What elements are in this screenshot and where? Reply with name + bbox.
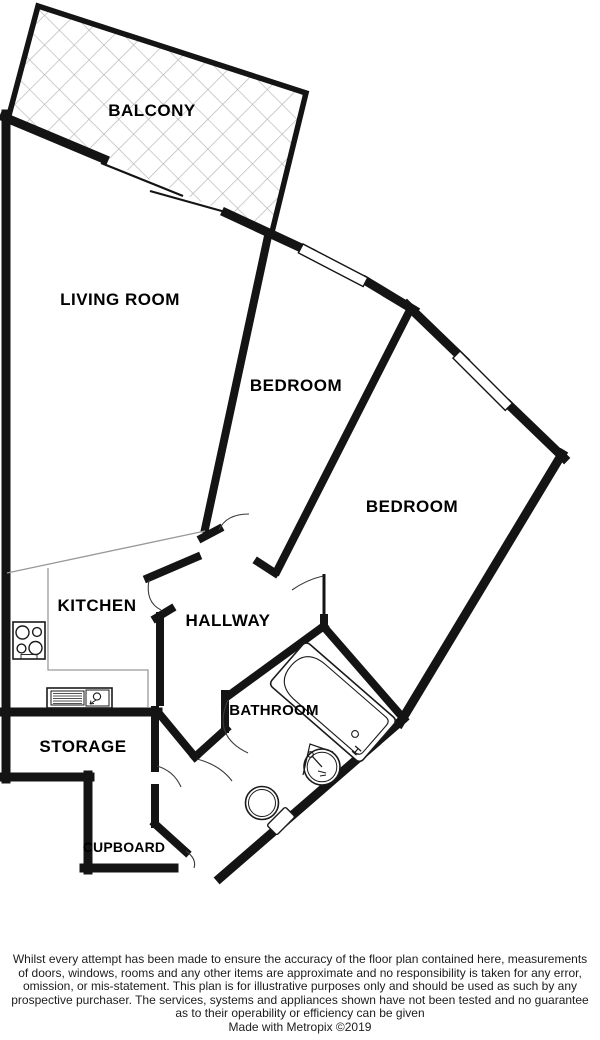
kitchen-label: KITCHEN	[57, 596, 136, 615]
living-room-label: LIVING ROOM	[60, 290, 180, 309]
wall-kitchen-hall-a	[148, 557, 197, 578]
balcony-label: BALCONY	[108, 101, 196, 120]
door-arc-kitchen	[148, 580, 161, 610]
bedroom2-label: BEDROOM	[366, 497, 458, 516]
jamb-bedroom2	[258, 562, 275, 573]
metropix-credit: Made with Metropix ©2019	[0, 1021, 600, 1035]
wall-hall-sw-a	[162, 717, 195, 757]
hallway-label: HALLWAY	[185, 611, 270, 630]
disclaimer-line: of doors, windows, rooms and any other i…	[0, 967, 600, 981]
sink-unit-icon	[47, 688, 112, 708]
window-icon	[298, 244, 367, 287]
disclaimer-line: Whilst every attempt has been made to en…	[0, 953, 600, 967]
disclaimer-line: prospective purchaser. The services, sys…	[0, 994, 600, 1008]
wall-ne-bedroom2-b	[509, 405, 564, 458]
disclaimer-line: omission, or mis-statement. This plan is…	[0, 980, 600, 994]
wall-bedroom1-right	[277, 308, 411, 571]
outer-walls	[2, 114, 564, 878]
door-arc-bedroom1	[219, 514, 249, 530]
hob-icon	[13, 622, 45, 659]
door-arc-storage	[157, 766, 181, 787]
wall-hall-sw-b	[195, 729, 226, 757]
floor-plan-page: BALCONY LIVING ROOM BEDROOM BEDROOM KITC…	[0, 0, 600, 1040]
footer-disclaimer: Whilst every attempt has been made to en…	[0, 953, 600, 1035]
wall-ne-bedroom2-a	[407, 305, 464, 360]
washbasin-icon	[303, 744, 340, 785]
door-arc-bedroom2	[292, 576, 323, 590]
kitchen-fixtures	[13, 568, 148, 708]
disclaimer-line: as to their operability or efficiency ca…	[0, 1007, 600, 1021]
cupboard-label: CUPBOARD	[83, 839, 166, 855]
bathroom-label: BATHROOM	[229, 702, 319, 719]
wall-se-bedroom2	[400, 454, 562, 723]
bedroom1-label: BEDROOM	[250, 376, 342, 395]
toilet-icon	[246, 787, 296, 836]
floor-plan-svg: BALCONY LIVING ROOM BEDROOM BEDROOM KITC…	[0, 0, 600, 940]
floor-plan: BALCONY LIVING ROOM BEDROOM BEDROOM KITC…	[0, 0, 600, 940]
interior-walls	[148, 236, 411, 852]
kitchen-counter-line	[48, 568, 148, 707]
window-icon	[453, 351, 512, 410]
door-arc-corridor	[197, 759, 232, 781]
storage-label: STORAGE	[39, 737, 126, 756]
